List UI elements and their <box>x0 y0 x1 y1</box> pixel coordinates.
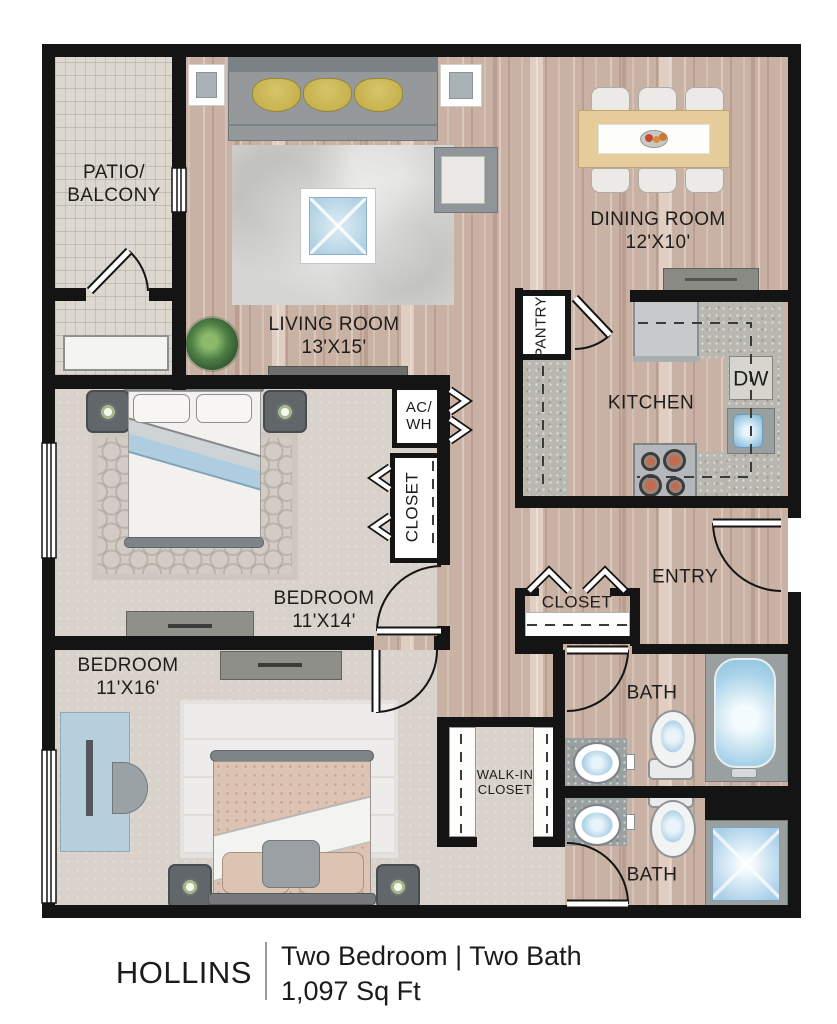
caption-divider <box>265 942 267 1000</box>
dining-room-label: DINING ROOM12'X10' <box>590 208 725 254</box>
plan-name: HOLLINS <box>0 955 252 991</box>
plan-area: 1,097 Sq Ft <box>281 976 421 1007</box>
bedroom1-closet-label: CLOSET <box>404 472 421 542</box>
bath1-label: BATH <box>627 682 678 705</box>
patio-label: PATIO/BALCONY <box>67 161 161 207</box>
bedroom2-label: BEDROOM11'X16' <box>78 654 179 700</box>
living-room-label: LIVING ROOM13'X15' <box>268 313 399 359</box>
floorplan-image: PATIO/BALCONY LIVING ROOM13'X15' DINING … <box>0 0 837 1024</box>
plan-type: Two Bedroom | Two Bath <box>281 941 582 972</box>
bath2-label: BATH <box>627 864 678 887</box>
entry-closet-label: CLOSET <box>542 591 612 614</box>
acwh-label: AC/WH <box>406 399 432 433</box>
dishwasher-label: DW <box>733 368 769 391</box>
pantry-label: PANTRY <box>533 296 550 358</box>
walkin-closet-label: WALK-INCLOSET <box>477 767 534 797</box>
window <box>42 168 186 903</box>
entry-label: ENTRY <box>652 566 718 589</box>
kitchen-label: KITCHEN <box>608 392 694 415</box>
bedroom1-label: BEDROOM11'X14' <box>274 587 375 633</box>
